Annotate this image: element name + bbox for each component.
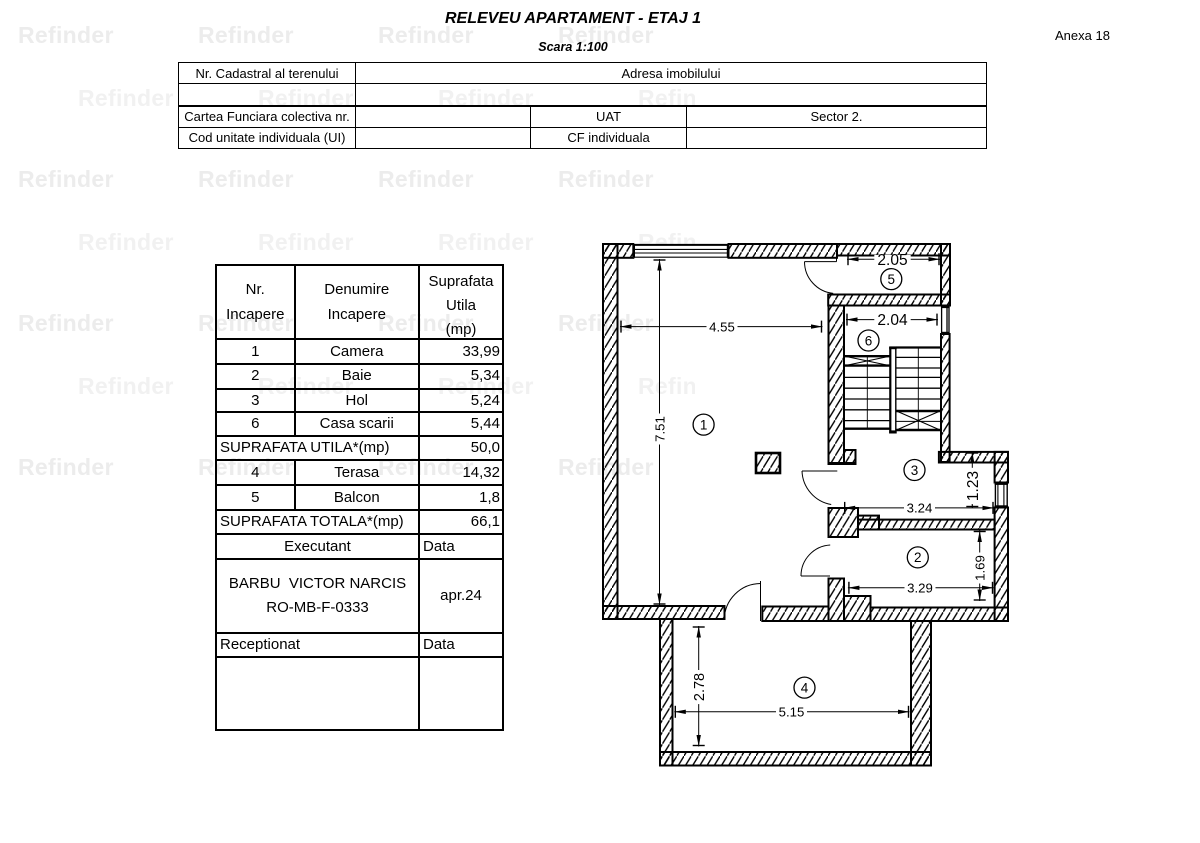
svg-text:3.29: 3.29 <box>907 581 933 596</box>
svg-text:1.69: 1.69 <box>973 555 988 581</box>
svg-text:1.23: 1.23 <box>965 471 982 501</box>
svg-text:2.05: 2.05 <box>877 252 907 269</box>
svg-text:2.04: 2.04 <box>877 312 908 329</box>
svg-text:7.51: 7.51 <box>652 416 667 442</box>
svg-text:1: 1 <box>700 417 708 432</box>
svg-text:2: 2 <box>914 550 922 565</box>
svg-text:5.15: 5.15 <box>779 705 805 720</box>
svg-text:3: 3 <box>911 463 919 478</box>
svg-text:5: 5 <box>888 272 896 287</box>
svg-text:4.55: 4.55 <box>709 319 735 334</box>
svg-text:6: 6 <box>865 333 873 348</box>
svg-text:4: 4 <box>801 680 809 695</box>
svg-text:3.24: 3.24 <box>907 501 933 516</box>
svg-text:2.78: 2.78 <box>692 673 708 701</box>
